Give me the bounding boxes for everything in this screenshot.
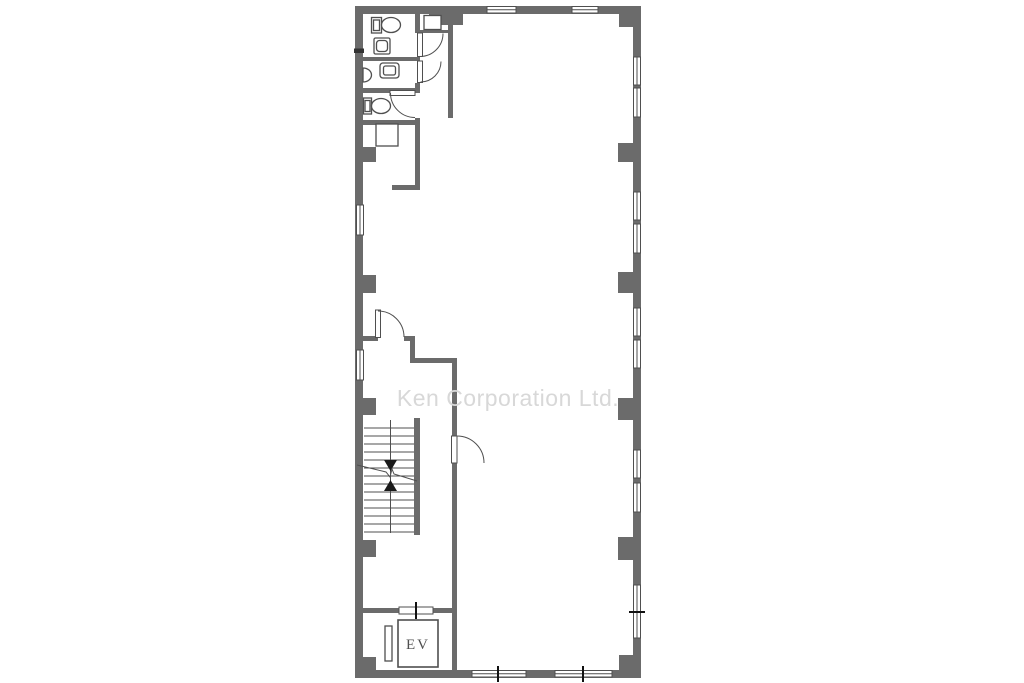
wc-wall-vertical-stub-1 (415, 57, 420, 61)
window-right-3 (634, 192, 641, 220)
door-wc-room-3 (390, 91, 415, 118)
window-top-2 (572, 7, 598, 14)
sink-1-basin (377, 41, 388, 52)
ev-lobby-wall-left (363, 608, 399, 613)
windows (357, 7, 646, 683)
core-wall-vertical-top (448, 14, 453, 118)
window-bottom-1 (472, 666, 526, 682)
pilaster-right-1 (618, 143, 633, 162)
core-wall-vertical-lower (452, 463, 457, 678)
corner-pilaster-bottom-left (363, 657, 376, 670)
window-left-1 (357, 205, 364, 235)
shaft-box (424, 16, 441, 30)
pilaster-left-3 (363, 398, 376, 415)
window-right-5 (634, 308, 641, 336)
window-right-6 (634, 340, 641, 368)
door-stair-lobby (376, 310, 405, 338)
window-left-2 (357, 350, 364, 380)
service-closet-box (376, 124, 398, 146)
vent-mark (354, 49, 364, 54)
toilet-2-bowl (372, 99, 391, 114)
stair-arrow-down (384, 460, 397, 471)
screenshot-root: EV Ken Corporation Ltd. (0, 0, 1024, 683)
walls (355, 6, 641, 678)
elevator-door (385, 626, 392, 661)
wc-divider-1 (363, 57, 420, 61)
pilaster-right-3 (618, 398, 633, 420)
pilaster-right-2 (618, 272, 633, 293)
window-right-2 (634, 88, 641, 117)
toilet-2-tank-lid (365, 101, 370, 112)
window-right-4 (634, 224, 641, 253)
elevator-label: EV (406, 637, 430, 653)
stair-arrow-up (384, 480, 397, 491)
floor-plan-canvas: EV Ken Corporation Ltd. (0, 0, 1024, 683)
window-right-9 (629, 585, 645, 638)
corner-pilaster-top-right (619, 14, 633, 27)
counter-2-basin (384, 66, 396, 75)
door-wc-corridor-2 (418, 61, 442, 83)
stairs (357, 420, 417, 533)
window-bottom-2 (555, 666, 612, 682)
wc-wall-vertical-top (415, 12, 420, 33)
wc-wall-vertical-lower (415, 118, 420, 190)
watermark-text: Ken Corporation Ltd. (397, 385, 619, 411)
ev-lobby-opening (399, 602, 433, 619)
sink-2-wall-basin (363, 68, 372, 82)
lobby-wall-horizontal (410, 358, 457, 363)
window-right-1 (634, 57, 641, 85)
wc-wall-stub-bottom (392, 185, 420, 190)
wc-wall-vertical-stub-2 (415, 83, 420, 93)
pilaster-left-2 (363, 275, 376, 293)
pilaster-left-1 (363, 147, 376, 162)
stair-rail (414, 418, 420, 535)
window-right-7 (634, 450, 641, 478)
door-main-room (452, 436, 485, 463)
shaft-room-bottom-wall (420, 30, 448, 33)
ev-lobby-wall-right (433, 608, 452, 613)
toilet-1-bowl (382, 18, 401, 33)
elevator: EV (385, 620, 438, 667)
stair-treads (364, 428, 414, 532)
window-top-1 (487, 7, 516, 14)
door-wc-corridor-1 (418, 33, 444, 57)
window-right-8 (634, 483, 641, 512)
toilet-1-tank-lid (374, 20, 380, 31)
pilaster-right-4 (618, 537, 633, 560)
pilaster-left-4 (363, 540, 376, 557)
outer-wall-left (355, 6, 363, 678)
corner-pilaster-bottom-right (619, 655, 633, 670)
stair-break-line (357, 465, 417, 481)
